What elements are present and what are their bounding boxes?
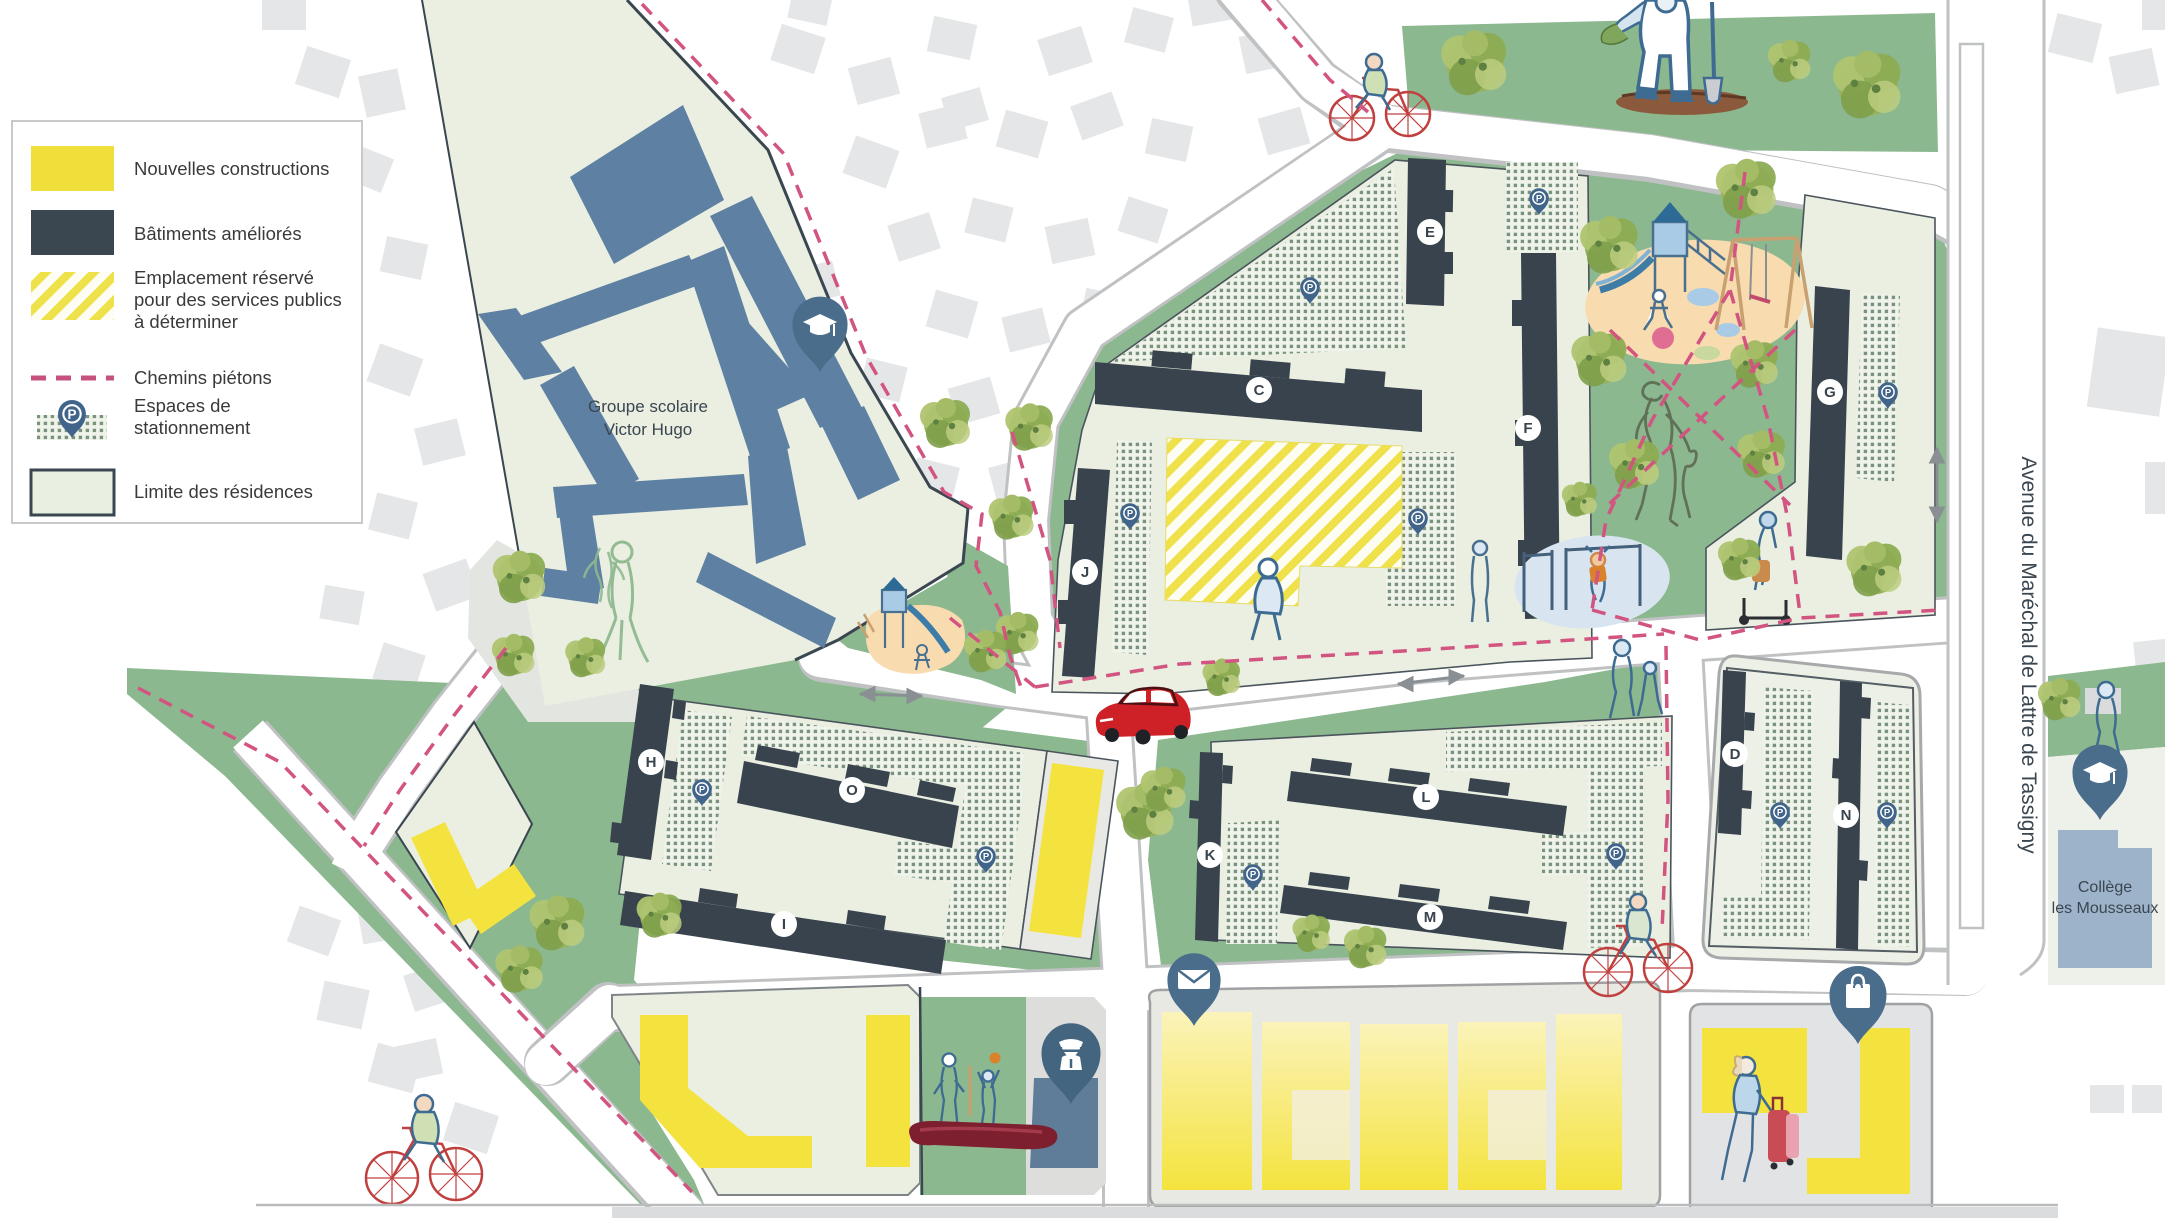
- svg-text:Limite des résidences: Limite des résidences: [134, 481, 313, 502]
- svg-text:I: I: [782, 916, 786, 933]
- svg-text:Espaces de: Espaces de: [134, 395, 231, 416]
- svg-text:L: L: [1421, 789, 1430, 806]
- svg-text:pour des services publics: pour des services publics: [134, 289, 342, 310]
- svg-text:O: O: [846, 782, 858, 799]
- svg-text:les Mousseaux: les Mousseaux: [2052, 900, 2159, 917]
- svg-text:N: N: [1841, 807, 1852, 824]
- svg-text:Nouvelles constructions: Nouvelles constructions: [134, 158, 329, 179]
- svg-text:M: M: [1424, 909, 1437, 926]
- svg-text:K: K: [1205, 847, 1216, 864]
- svg-text:Bâtiments améliorés: Bâtiments améliorés: [134, 223, 302, 244]
- svg-text:Emplacement réservé: Emplacement réservé: [134, 267, 314, 288]
- svg-text:C: C: [1254, 382, 1265, 399]
- svg-text:à déterminer: à déterminer: [134, 311, 238, 332]
- svg-text:Victor Hugo: Victor Hugo: [604, 420, 693, 439]
- svg-text:Chemins piétons: Chemins piétons: [134, 367, 272, 388]
- svg-text:Collège: Collège: [2078, 879, 2132, 896]
- svg-text:Groupe scolaire: Groupe scolaire: [588, 397, 708, 416]
- svg-text:G: G: [1824, 384, 1836, 401]
- svg-text:F: F: [1523, 420, 1532, 437]
- svg-text:H: H: [646, 754, 657, 771]
- svg-text:Avenue du Maréchal de Lattre d: Avenue du Maréchal de Lattre de Tassigny: [2017, 456, 2040, 854]
- svg-text:J: J: [1081, 564, 1089, 581]
- svg-text:D: D: [1730, 746, 1741, 763]
- svg-text:E: E: [1425, 224, 1435, 241]
- svg-text:stationnement: stationnement: [134, 417, 250, 438]
